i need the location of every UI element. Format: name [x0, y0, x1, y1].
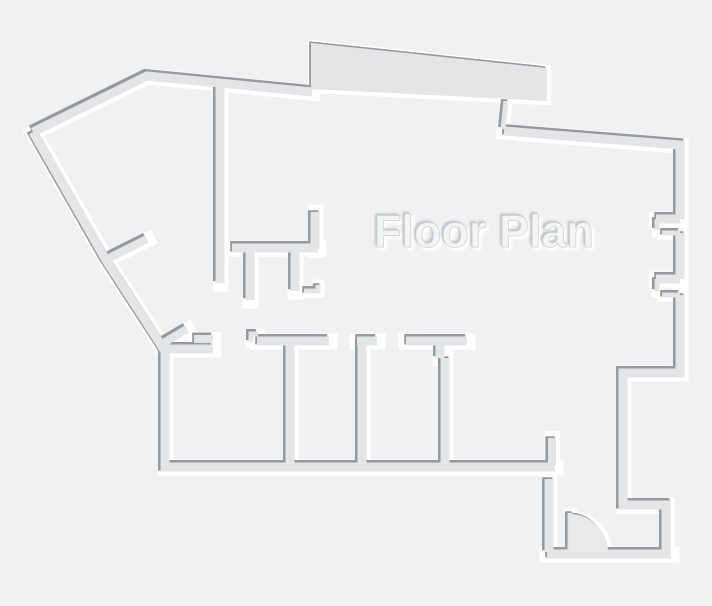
partition-3-stem: [440, 341, 445, 465]
closet-hook-jamb-shadow: [302, 283, 316, 289]
floor-plan-page: Floor Plan: [0, 0, 712, 606]
walls-layer: [33, 43, 680, 554]
right-wall-lower-highlight: [624, 296, 681, 553]
entry-door-swing: [570, 514, 608, 553]
floor-plan-canvas: [0, 0, 712, 606]
roof-step-jamb: [503, 101, 506, 129]
floor-plan-title: Floor Plan: [374, 206, 594, 258]
